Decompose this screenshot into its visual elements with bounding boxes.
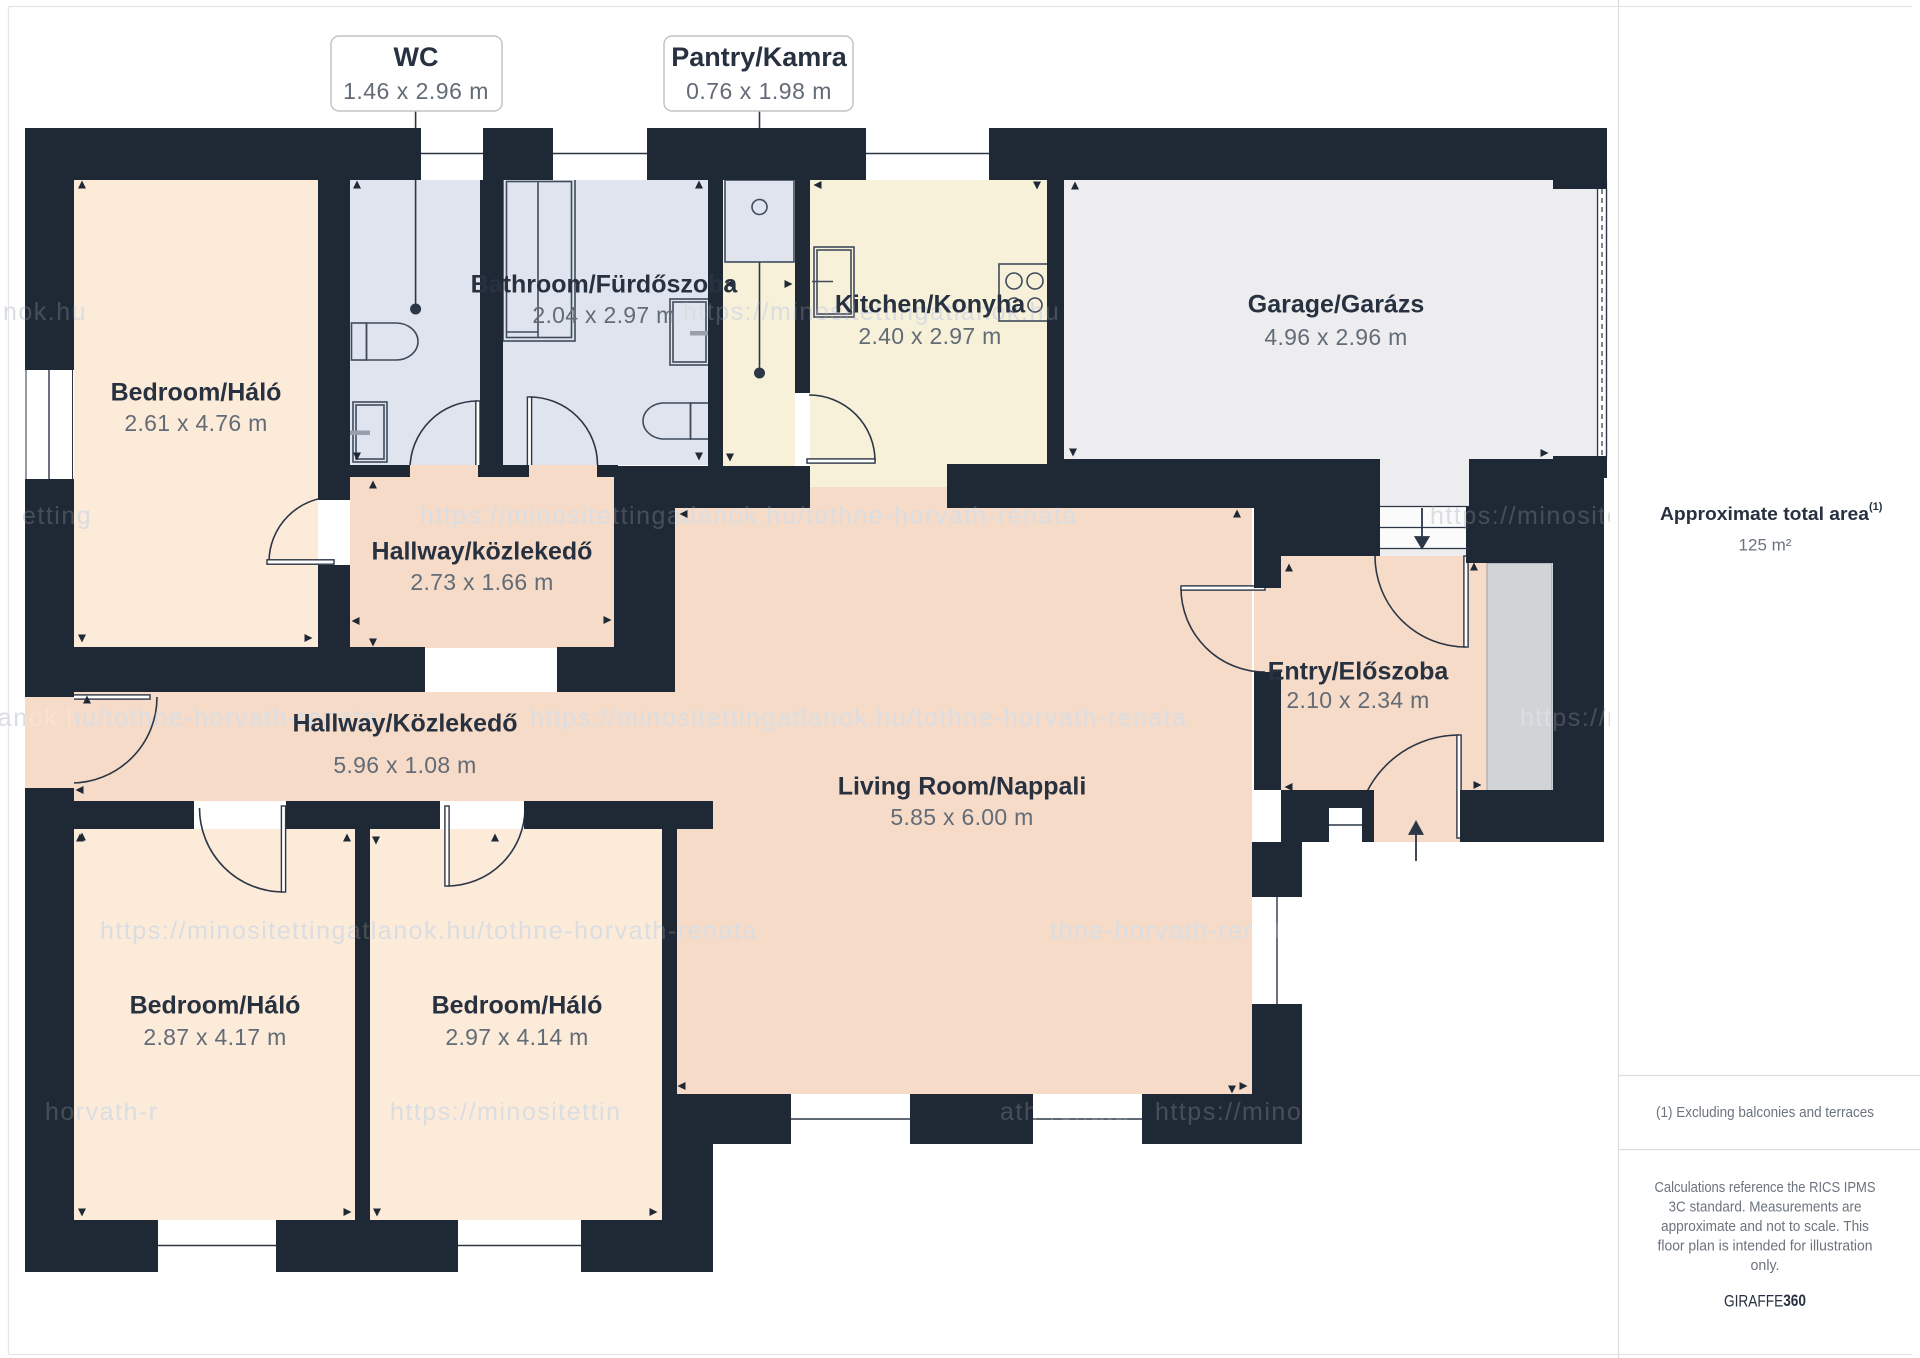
- svg-text:Approximate total area: Approximate total area: [1660, 504, 1870, 524]
- svg-text:Bedroom/Háló: Bedroom/Háló: [111, 379, 282, 407]
- svg-text:Calculations reference the RIC: Calculations reference the RICS IPMS: [1655, 1179, 1876, 1196]
- svg-text:ath-renata: ath-renata: [1000, 1098, 1129, 1126]
- svg-text:https://minositettingatlanok.h: https://minositettingatlanok.hu/tothne-h…: [530, 704, 1188, 732]
- svg-text:Kitchen/Konyha: Kitchen/Konyha: [835, 291, 1026, 319]
- svg-text:2.61 x 4.76 m: 2.61 x 4.76 m: [124, 410, 267, 436]
- svg-text:approximate and not to scale.: approximate and not to scale. This: [1661, 1218, 1869, 1235]
- svg-text:4.96 x 2.96 m: 4.96 x 2.96 m: [1264, 324, 1407, 350]
- svg-text:etting: etting: [22, 502, 92, 530]
- svg-text:0.76 x 1.98 m: 0.76 x 1.98 m: [686, 78, 832, 104]
- svg-text:horvath-r: horvath-r: [45, 1098, 159, 1126]
- svg-text:Hallway/közlekedő: Hallway/közlekedő: [372, 538, 593, 566]
- svg-text:only.: only.: [1751, 1257, 1780, 1274]
- svg-text:Bathroom/Fürdőszoba: Bathroom/Fürdőszoba: [471, 271, 739, 299]
- svg-text:https://minositettin: https://minositettin: [390, 1098, 621, 1126]
- svg-text:2.73 x 1.66 m: 2.73 x 1.66 m: [410, 569, 553, 595]
- svg-text:2.97 x 4.14 m: 2.97 x 4.14 m: [445, 1024, 588, 1050]
- svg-text:Bedroom/Háló: Bedroom/Háló: [130, 992, 301, 1020]
- svg-text:Hallway/Közlekedő: Hallway/Közlekedő: [292, 710, 517, 738]
- svg-text:Entry/Előszoba: Entry/Előszoba: [1268, 658, 1450, 686]
- svg-text:https://minositettingatlanok.h: https://minositettingatlanok.hu/tothne-h…: [100, 917, 758, 945]
- svg-text:floor plan is intended for ill: floor plan is intended for illustration: [1658, 1237, 1873, 1254]
- svg-text:2.04 x 2.97 m: 2.04 x 2.97 m: [532, 302, 675, 328]
- svg-text:thne-horvath-renata: thne-horvath-renata: [1050, 917, 1298, 945]
- svg-text:https://minositetti: https://minositetti: [1155, 1098, 1371, 1126]
- svg-text:(1) Excluding balconies and te: (1) Excluding balconies and terraces: [1656, 1104, 1874, 1121]
- svg-text:Living Room/Nappali: Living Room/Nappali: [838, 773, 1087, 801]
- svg-text:2.87 x 4.17 m: 2.87 x 4.17 m: [143, 1024, 286, 1050]
- svg-text:3C standard. Measurements are: 3C standard. Measurements are: [1669, 1198, 1862, 1215]
- svg-text:https://minositettingatlanok.h: https://minositettingatlanok.hu/tothne-h…: [420, 502, 1078, 530]
- svg-text:2.10 x 2.34 m: 2.10 x 2.34 m: [1286, 687, 1429, 713]
- svg-text:2.40 x 2.97 m: 2.40 x 2.97 m: [858, 323, 1001, 349]
- svg-text:Bedroom/Háló: Bedroom/Háló: [432, 992, 603, 1020]
- svg-text:Pantry/Kamra: Pantry/Kamra: [671, 42, 848, 72]
- svg-text:WC: WC: [394, 42, 439, 72]
- svg-text:1.46 x 2.96 m: 1.46 x 2.96 m: [343, 78, 489, 104]
- svg-text:5.96 x 1.08 m: 5.96 x 1.08 m: [333, 752, 476, 778]
- svg-text:5.85 x 6.00 m: 5.85 x 6.00 m: [890, 804, 1033, 830]
- svg-text:Garage/Garázs: Garage/Garázs: [1248, 291, 1425, 319]
- svg-text:125 m²: 125 m²: [1739, 535, 1792, 554]
- svg-text:(1): (1): [1869, 501, 1883, 513]
- svg-text:nok.hu: nok.hu: [3, 298, 87, 326]
- svg-text:GIRAFFE360: GIRAFFE360: [1724, 1291, 1806, 1310]
